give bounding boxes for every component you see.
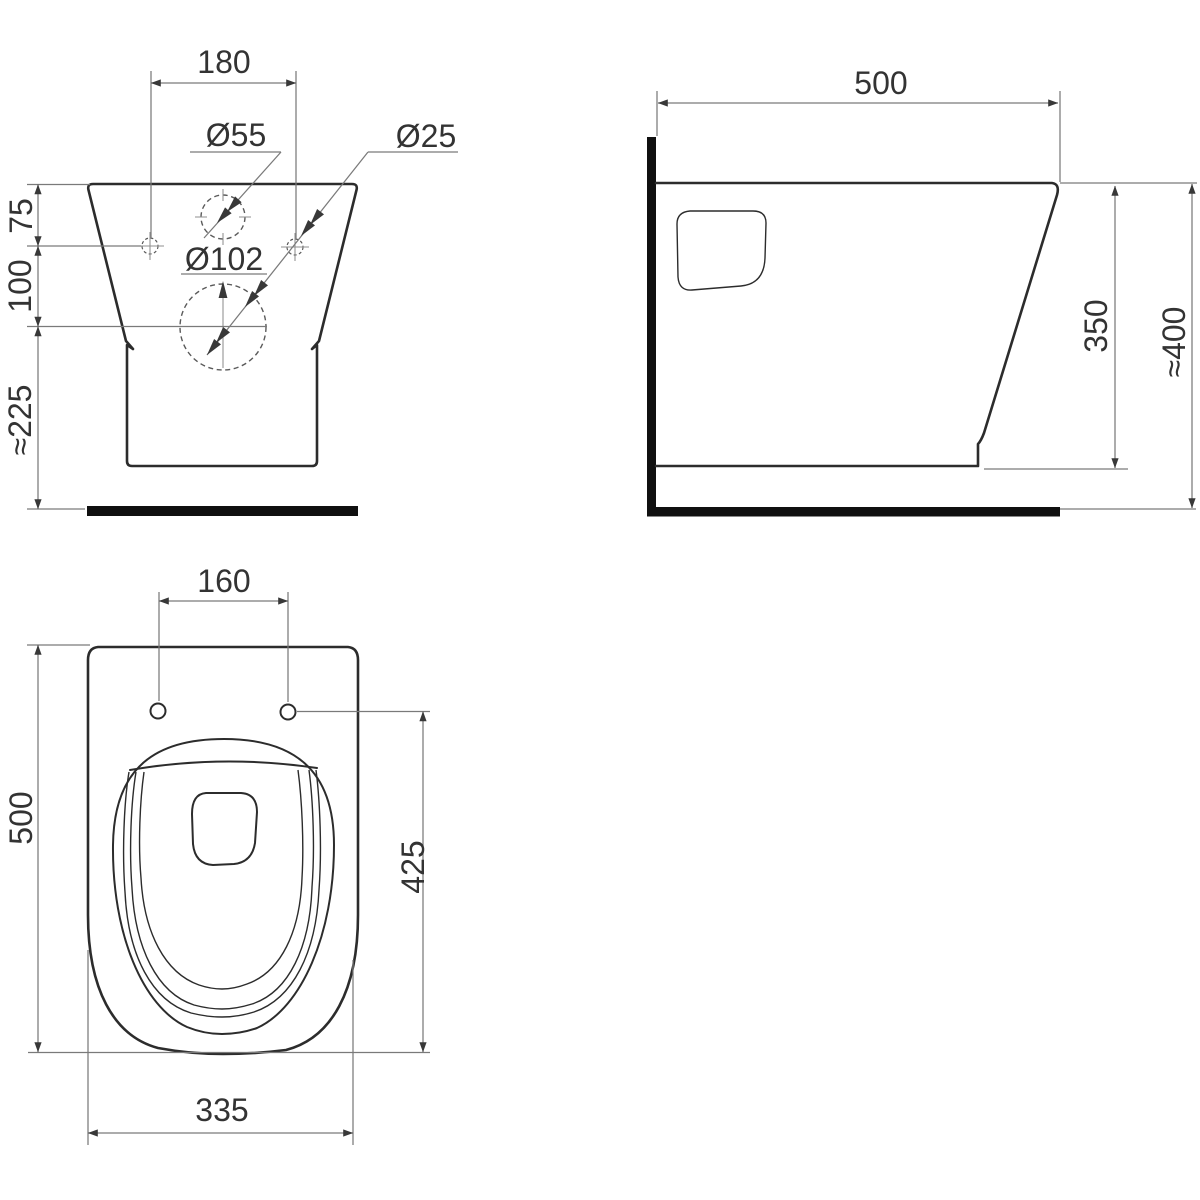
rear-dim-label-fixing-hole: Ø25 (396, 118, 456, 154)
side-body-outline (656, 183, 1058, 466)
top-view: 160 500 425 335 (3, 563, 431, 1145)
rear-dim-label-top-to-holes: 75 (3, 198, 39, 234)
rear-dim-label-hole-spacing: 180 (197, 44, 250, 80)
rear-view: 180 Ø55 Ø25 Ø102 (2, 44, 458, 516)
seat-fixing-hole-right (281, 705, 296, 720)
seat-hinge-line (130, 761, 317, 770)
top-dim-overall-width: 335 (88, 950, 353, 1145)
bowl-opening-line (140, 770, 303, 989)
rear-dim-label-outlet-to-floor: ≈225 (2, 385, 38, 456)
side-dim-depth: 500 (657, 65, 1060, 182)
top-dim-label-seat-hole-spacing: 160 (197, 563, 250, 599)
rear-floor-line (87, 506, 358, 516)
rear-dim-label-holes-to-outlet: 100 (2, 259, 38, 312)
rear-dim-flush-hole: Ø55 (190, 117, 281, 238)
technical-drawing-page: 180 Ø55 Ø25 Ø102 (0, 0, 1200, 1200)
side-view: 500 350 ≈400 (647, 65, 1197, 516)
wall-line (647, 137, 656, 516)
top-dim-holes-to-front: 425 (297, 712, 431, 1053)
seat-inner-ring-inner-line (131, 770, 314, 1009)
seat-inner-ring-outer-line (124, 770, 321, 1017)
top-dim-label-overall-width: 335 (195, 1092, 248, 1128)
top-dim-label-overall-length: 500 (3, 791, 39, 844)
rear-dim-vertical-chain: 75 100 ≈225 (2, 185, 267, 510)
toilet-dimension-drawing: 180 Ø55 Ø25 Ø102 (0, 0, 1200, 1200)
top-dim-seat-hole-spacing: 160 (159, 563, 288, 702)
top-dim-overall-length: 500 (3, 645, 430, 1053)
side-floor-line (647, 507, 1060, 517)
rear-dim-label-flush-hole: Ø55 (206, 117, 266, 153)
top-dim-label-holes-to-front: 425 (395, 840, 431, 893)
side-dim-label-overall-height: ≈400 (1156, 307, 1192, 378)
seat-fixing-hole-left (151, 704, 166, 719)
rear-dim-label-outlet: Ø102 (185, 241, 263, 277)
rear-dim-outlet: Ø102 (181, 241, 267, 277)
rear-dim-fixing-hole: Ø25 (204, 118, 458, 358)
side-dim-label-rim-height: 350 (1078, 299, 1114, 352)
side-outlet-hole (677, 211, 766, 290)
top-body-outline (88, 647, 358, 1054)
drain-hole (192, 793, 257, 865)
side-dim-label-depth: 500 (854, 65, 907, 101)
